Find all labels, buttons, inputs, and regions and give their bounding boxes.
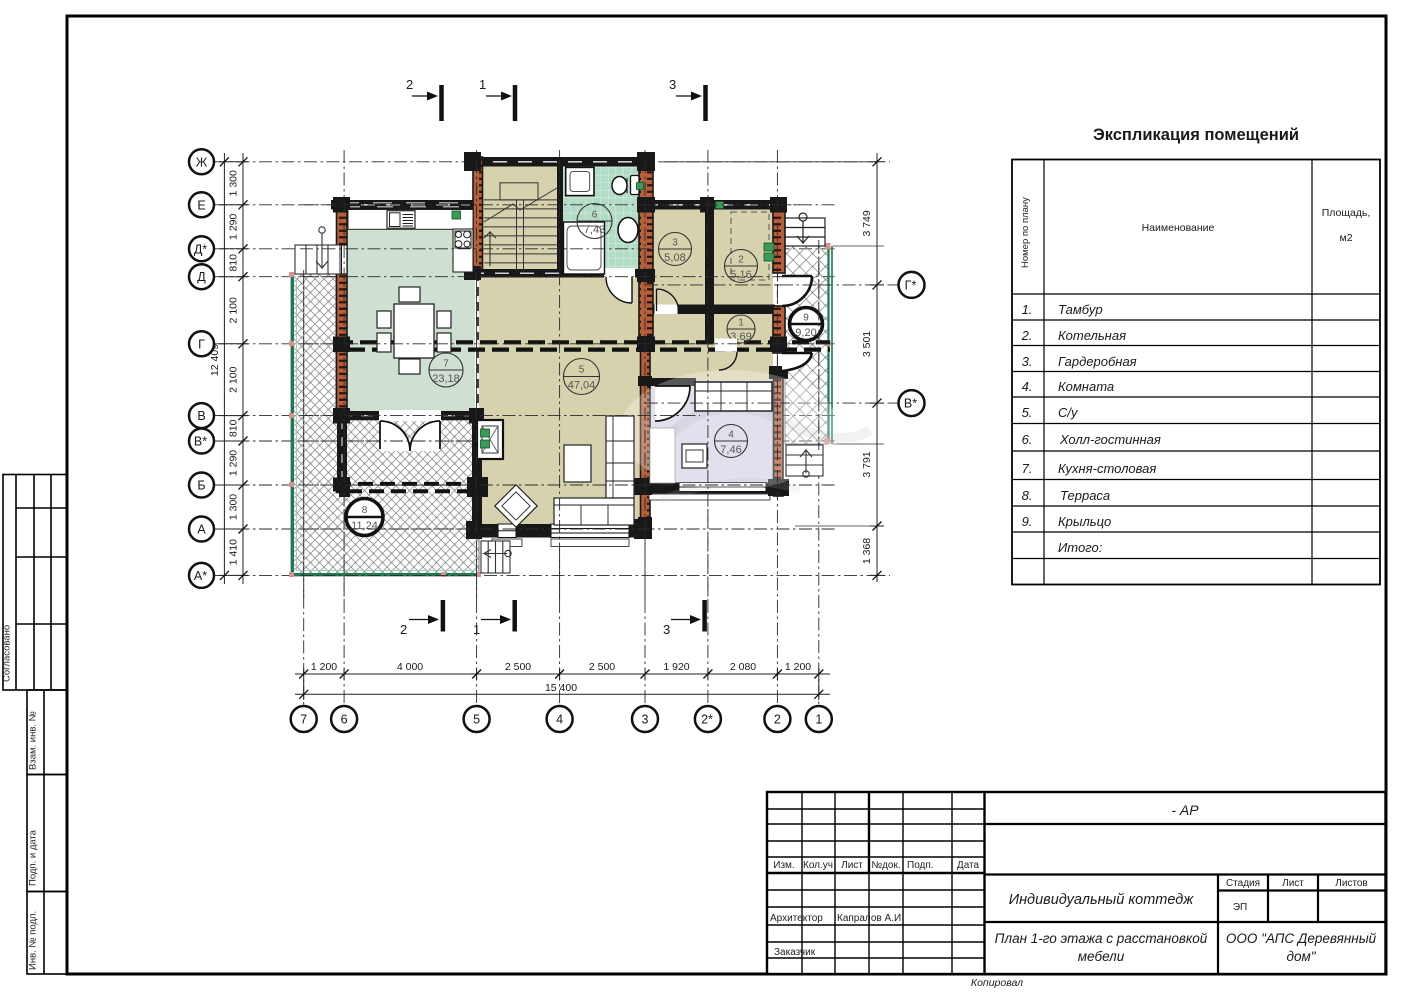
svg-text:Согласовано: Согласовано [2, 625, 13, 682]
svg-text:Лист: Лист [841, 860, 863, 871]
svg-text:3.: 3. [1022, 354, 1033, 369]
svg-text:1 200: 1 200 [785, 661, 811, 673]
svg-text:23,18: 23,18 [432, 373, 460, 385]
svg-text:2 080: 2 080 [730, 661, 756, 673]
svg-text:9.: 9. [1022, 514, 1033, 529]
svg-text:В*: В* [904, 397, 917, 411]
svg-text:Архитектор: Архитектор [770, 913, 823, 924]
svg-text:1 368: 1 368 [861, 538, 873, 564]
svg-text:7: 7 [300, 713, 307, 727]
svg-text:Крыльцо: Крыльцо [1058, 514, 1111, 529]
svg-text:6: 6 [341, 713, 348, 727]
svg-text:№док.: №док. [871, 860, 900, 871]
svg-text:1: 1 [479, 77, 486, 92]
svg-text:Подп. и дата: Подп. и дата [28, 829, 39, 886]
svg-text:ООО "АПС Деревянный: ООО "АПС Деревянный [1226, 931, 1377, 946]
svg-text:Площадь,: Площадь, [1322, 207, 1371, 219]
svg-text:Тамбур: Тамбур [1058, 302, 1103, 317]
svg-text:Индивидуальный коттедж: Индивидуальный коттедж [1009, 892, 1195, 908]
svg-text:Котельная: Котельная [1058, 328, 1126, 343]
svg-text:Капралов А.И: Капралов А.И [837, 913, 901, 924]
svg-text:1 290: 1 290 [228, 214, 240, 240]
svg-text:3: 3 [642, 713, 649, 727]
svg-text:мебели: мебели [1078, 949, 1125, 964]
svg-text:А: А [197, 523, 206, 537]
svg-text:Стадия: Стадия [1226, 878, 1260, 889]
svg-text:2: 2 [774, 713, 781, 727]
svg-text:Гардеробная: Гардеробная [1058, 354, 1137, 369]
svg-text:6.: 6. [1022, 432, 1033, 447]
svg-text:Номер по плану: Номер по плану [1020, 197, 1031, 268]
svg-text:Г*: Г* [905, 278, 917, 292]
svg-text:А*: А* [194, 569, 207, 583]
svg-text:- АР: - АР [1171, 802, 1199, 818]
svg-text:7.: 7. [1022, 461, 1033, 476]
svg-text:3: 3 [663, 622, 670, 637]
svg-text:Е: Е [197, 198, 205, 212]
svg-text:47,04: 47,04 [568, 380, 596, 392]
svg-text:Ж: Ж [196, 155, 208, 169]
svg-text:4: 4 [728, 430, 734, 441]
svg-text:2 100: 2 100 [228, 297, 240, 323]
svg-text:1 200: 1 200 [311, 661, 337, 673]
svg-text:м2: м2 [1339, 232, 1352, 244]
svg-text:3 501: 3 501 [861, 331, 873, 357]
svg-text:Подп.: Подп. [907, 860, 934, 871]
svg-text:Комната: Комната [1058, 379, 1114, 394]
svg-text:810: 810 [228, 254, 240, 272]
svg-text:2 100: 2 100 [228, 366, 240, 392]
svg-text:1 920: 1 920 [663, 661, 689, 673]
svg-text:5: 5 [579, 365, 585, 376]
svg-text:Д*: Д* [194, 242, 207, 256]
svg-text:5,08: 5,08 [664, 252, 685, 264]
svg-text:2*: 2* [701, 713, 713, 727]
svg-text:дом": дом" [1286, 949, 1316, 964]
svg-text:В: В [197, 409, 205, 423]
svg-text:5: 5 [473, 713, 480, 727]
svg-text:15 400: 15 400 [545, 682, 577, 694]
svg-text:2 500: 2 500 [505, 661, 531, 673]
svg-text:1: 1 [738, 318, 744, 329]
svg-text:Терраса: Терраса [1060, 488, 1110, 503]
svg-text:1.: 1. [1022, 302, 1033, 317]
svg-text:2: 2 [406, 77, 413, 92]
svg-text:1: 1 [815, 713, 822, 727]
svg-text:Листов: Листов [1335, 878, 1368, 889]
svg-text:Наименование: Наименование [1142, 222, 1215, 234]
svg-text:4: 4 [556, 713, 563, 727]
svg-text:1 300: 1 300 [228, 494, 240, 520]
svg-text:Заказчик: Заказчик [774, 947, 816, 958]
svg-text:Б: Б [197, 479, 205, 493]
svg-text:11,24: 11,24 [351, 520, 378, 532]
svg-text:Изм.: Изм. [773, 860, 794, 871]
svg-text:Копировал: Копировал [971, 977, 1023, 989]
svg-text:4.: 4. [1022, 379, 1033, 394]
svg-text:1 410: 1 410 [228, 539, 240, 565]
svg-text:С/у: С/у [1058, 405, 1079, 420]
svg-text:Инв. № подл.: Инв. № подл. [28, 911, 39, 970]
svg-text:2: 2 [738, 255, 744, 266]
svg-text:7: 7 [443, 359, 449, 370]
svg-text:Кухня-столовая: Кухня-столовая [1058, 461, 1156, 476]
svg-text:2: 2 [400, 622, 407, 637]
svg-text:Г: Г [198, 337, 205, 351]
svg-text:810: 810 [228, 419, 240, 437]
svg-text:5.: 5. [1022, 405, 1033, 420]
svg-text:Дата: Дата [957, 860, 980, 871]
svg-text:2 500: 2 500 [589, 661, 615, 673]
svg-text:7,46: 7,46 [720, 444, 741, 456]
svg-text:6: 6 [592, 210, 598, 221]
svg-text:1 290: 1 290 [228, 450, 240, 476]
svg-text:5,16: 5,16 [730, 269, 751, 281]
svg-text:3 791: 3 791 [861, 451, 873, 477]
svg-text:2.: 2. [1021, 328, 1033, 343]
svg-text:3: 3 [672, 238, 678, 249]
svg-text:8: 8 [362, 505, 368, 516]
svg-text:Экспликация помещений: Экспликация помещений [1093, 126, 1299, 144]
svg-text:План 1-го этажа с расстановкой: План 1-го этажа с расстановкой [995, 931, 1208, 946]
svg-text:Лист: Лист [1282, 878, 1304, 889]
svg-text:7,43: 7,43 [584, 224, 605, 236]
svg-text:Д: Д [197, 270, 206, 284]
svg-text:4 000: 4 000 [397, 661, 423, 673]
svg-text:1 300: 1 300 [228, 170, 240, 196]
svg-text:8.: 8. [1022, 488, 1033, 503]
svg-text:Холл-гостинная: Холл-гостинная [1059, 432, 1161, 447]
svg-text:3: 3 [669, 77, 676, 92]
svg-text:1: 1 [473, 622, 480, 637]
svg-text:Кол.уч: Кол.уч [803, 860, 833, 871]
svg-text:9: 9 [803, 313, 809, 324]
svg-text:Взам. инв. №: Взам. инв. № [28, 711, 39, 770]
svg-text:Итого:: Итого: [1058, 540, 1103, 555]
svg-text:9,20: 9,20 [795, 327, 816, 339]
svg-text:3 749: 3 749 [861, 210, 873, 236]
svg-text:ЭП: ЭП [1233, 902, 1247, 913]
svg-text:В*: В* [194, 435, 207, 449]
